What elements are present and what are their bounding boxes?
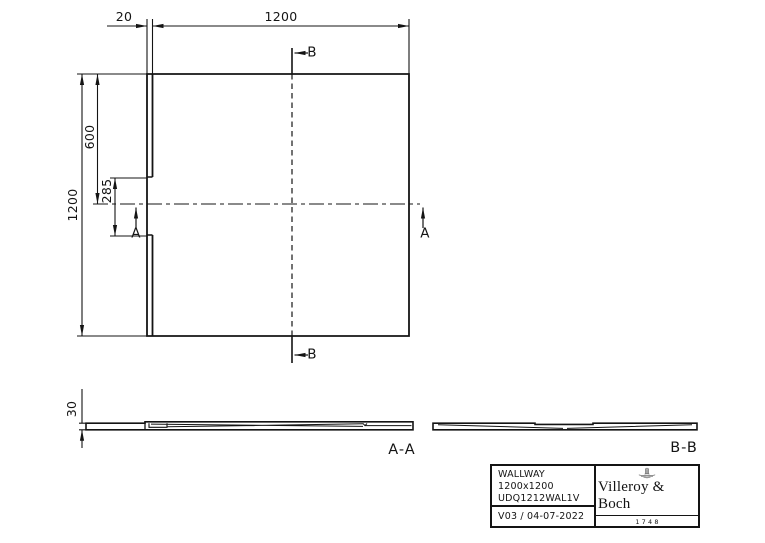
section-marker-b-bottom: B: [307, 348, 317, 362]
dim-label-600: 600: [84, 125, 97, 150]
revision-cell: V03 / 04-07-2022: [492, 507, 594, 526]
dim-label-30: 30: [66, 401, 79, 418]
title-block: WALLWAY 1200x1200 UDQ1212WAL1V V03 / 04-…: [490, 464, 700, 528]
section-bb-slope-lines: [438, 425, 692, 429]
title-block-info: WALLWAY 1200x1200 UDQ1212WAL1V V03 / 04-…: [492, 466, 596, 526]
brand-year: 1748: [633, 518, 660, 526]
dim-label-width-1200: 1200: [264, 11, 297, 24]
dim-label-flange-20: 20: [116, 11, 133, 24]
section-bb-outline: [433, 423, 697, 430]
section-aa-rim-line: [363, 424, 412, 426]
product-code: UDQ1212WAL1V: [498, 493, 594, 505]
dim-label-height-1200: 1200: [67, 188, 80, 221]
section-bb-drawing: [433, 423, 697, 430]
top-dimensions: [107, 19, 409, 74]
section-marker-a-right: A: [420, 227, 430, 241]
section-aa-slope-lines: [151, 424, 363, 427]
dim-label-285: 285: [101, 179, 114, 204]
drawing-linework: [0, 0, 765, 543]
dim-line-30-ext: [79, 423, 86, 430]
left-dimensions: [77, 74, 147, 336]
top-extension-lines: [147, 19, 409, 74]
product-name: WALLWAY: [498, 469, 594, 481]
section-aa-drawing: [79, 389, 413, 448]
product-info-cell: WALLWAY 1200x1200 UDQ1212WAL1V: [492, 466, 594, 507]
section-label-aa: A-A: [388, 443, 415, 458]
section-label-bb: B-B: [670, 441, 698, 456]
drawing-sheet: 20 1200 1200 600 285 30 B B A A A-A B-B …: [0, 0, 765, 543]
plan-view: [93, 48, 423, 363]
faucet-ripples-icon: [621, 467, 673, 479]
brand-cell: Villeroy & Boch 1748: [596, 466, 698, 526]
brand-name: Villeroy & Boch: [596, 479, 698, 516]
left-extension-lines: [77, 74, 147, 336]
tray-outline: [147, 74, 409, 336]
section-marker-b-top: B: [307, 46, 317, 60]
section-marker-a-left: A: [131, 227, 141, 241]
revision-date: V03 / 04-07-2022: [498, 511, 584, 522]
product-size: 1200x1200: [498, 481, 594, 493]
